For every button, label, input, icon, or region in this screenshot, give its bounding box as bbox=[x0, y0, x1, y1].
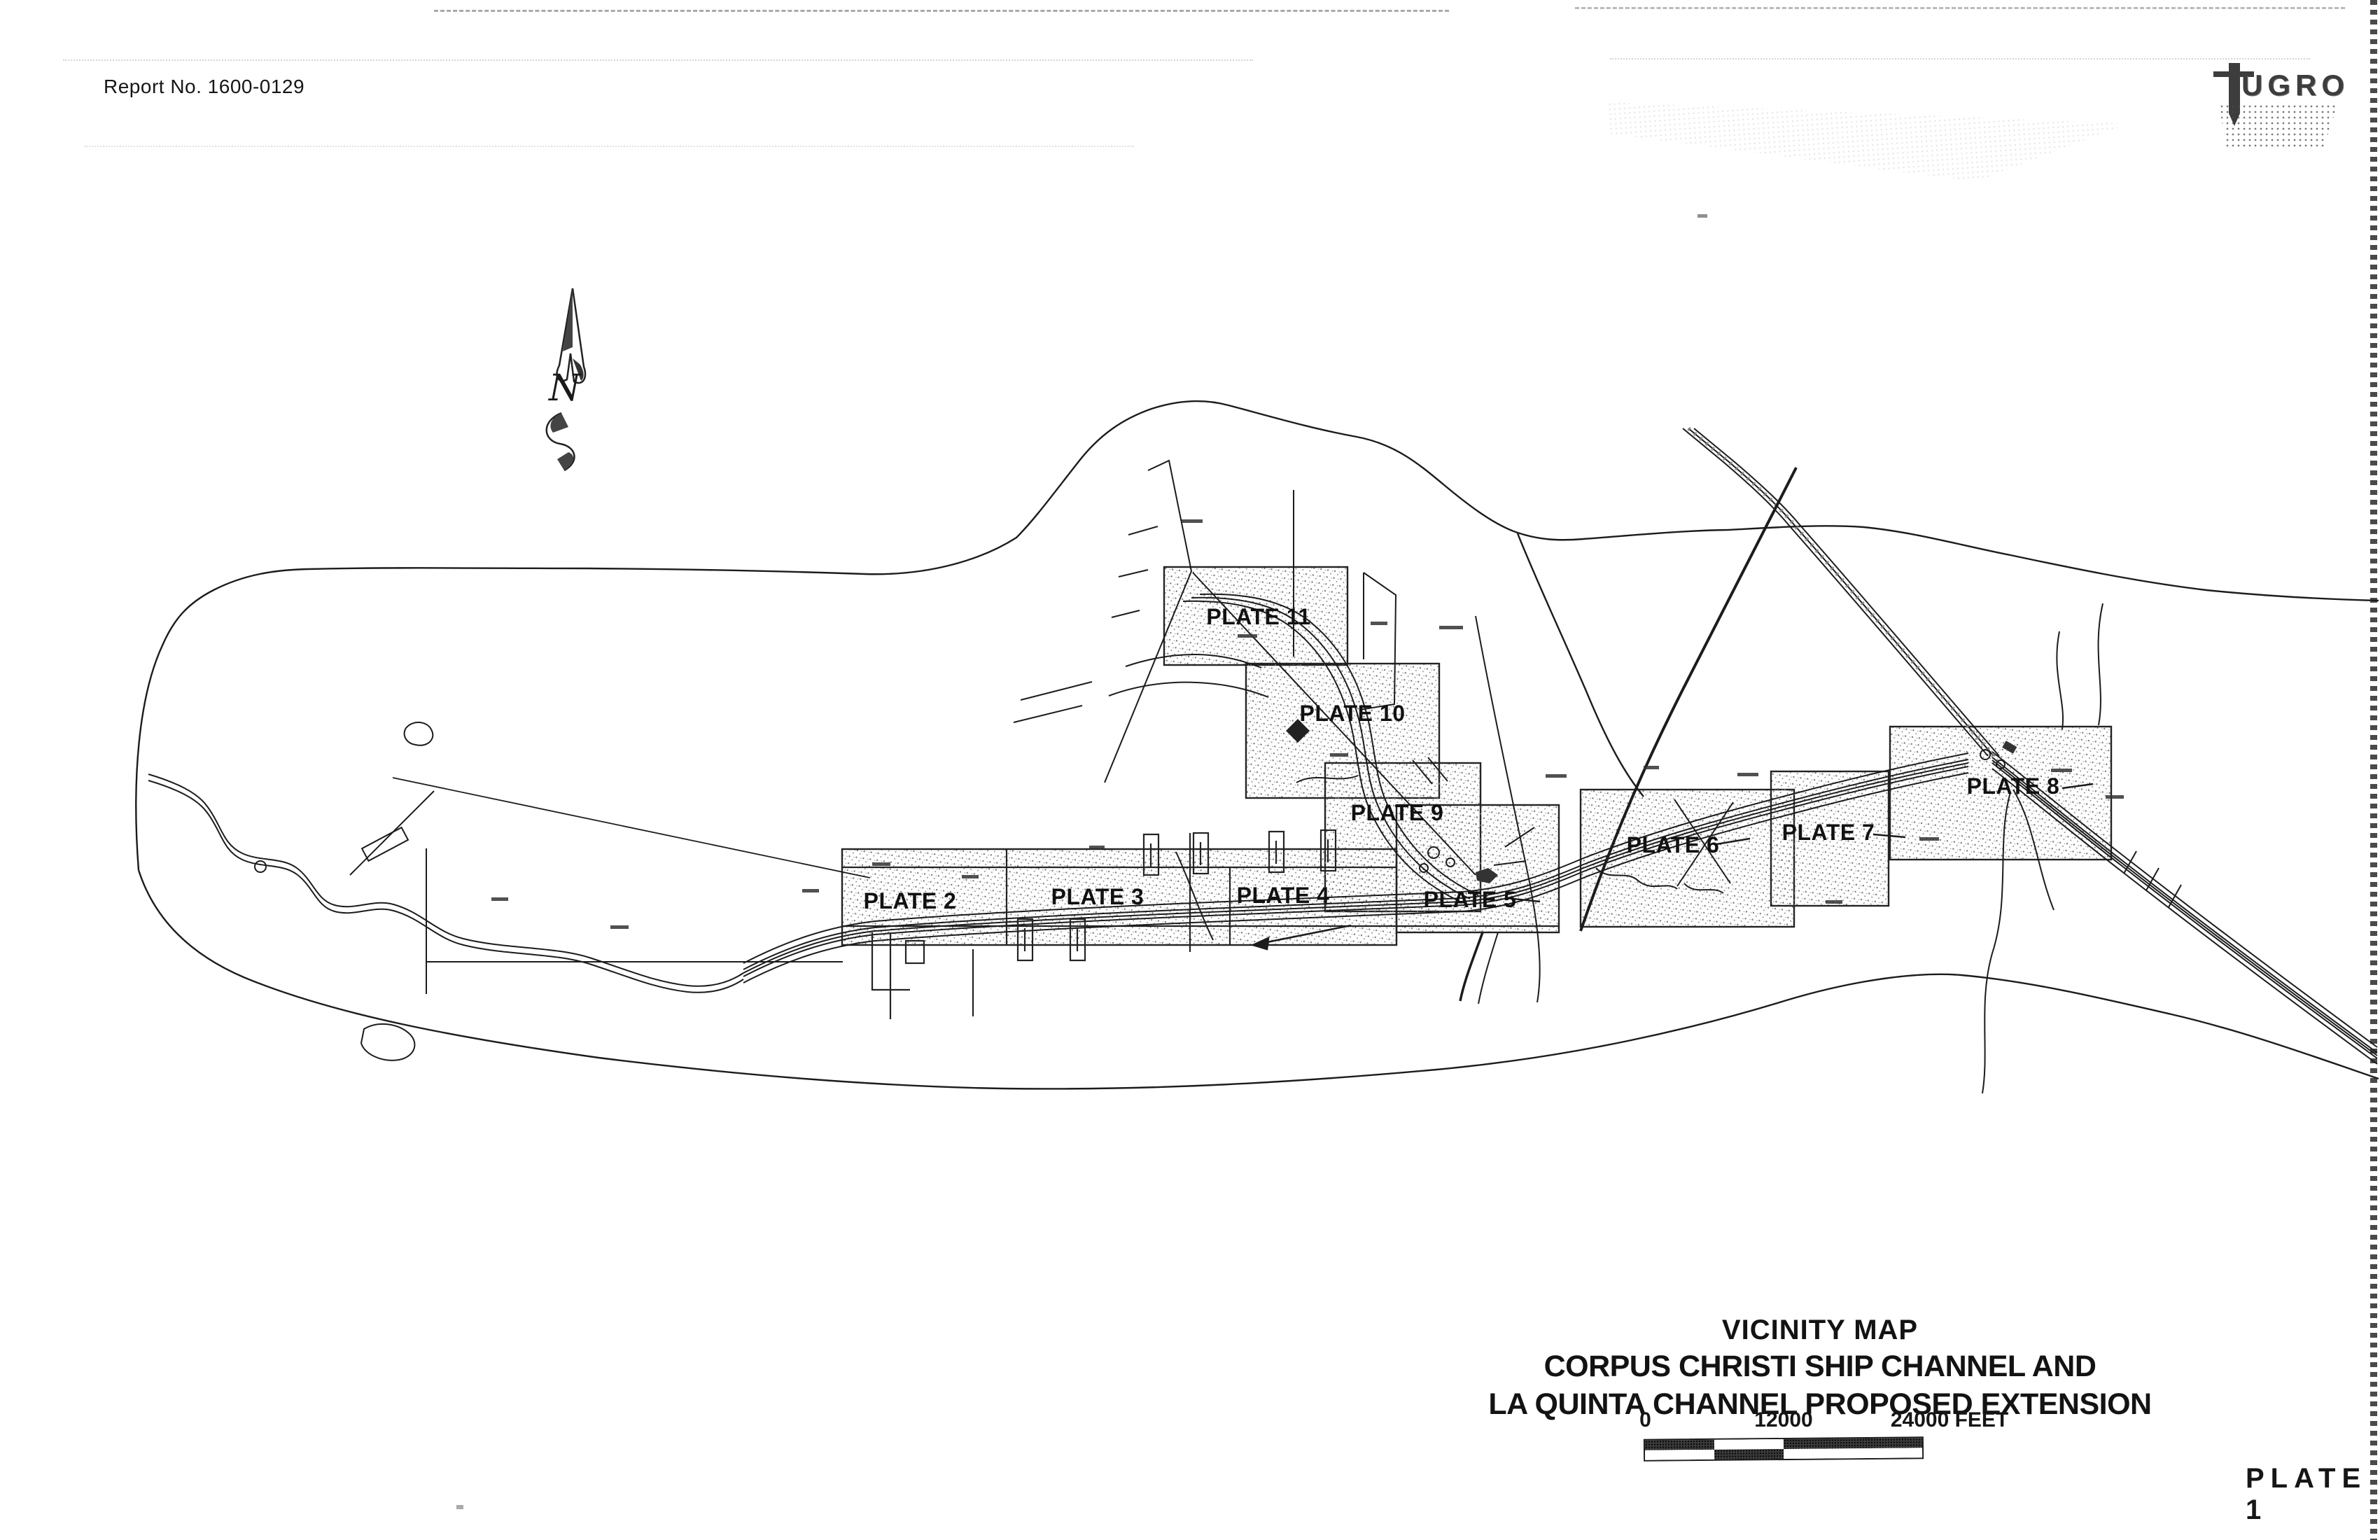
pond bbox=[405, 722, 433, 745]
pond bbox=[255, 861, 266, 872]
pond bbox=[361, 1024, 414, 1060]
road-south bbox=[1478, 932, 1498, 1004]
scale-tick-0: 0 bbox=[1639, 1408, 1651, 1432]
north-label: N bbox=[547, 367, 582, 409]
plate-2-label: PLATE 2 bbox=[864, 888, 957, 913]
plate-9-label: PLATE 9 bbox=[1351, 800, 1444, 825]
north-needle-fill bbox=[563, 288, 573, 351]
plate-10-label: PLATE 10 bbox=[1300, 701, 1406, 726]
stream bbox=[2057, 631, 2063, 729]
stream bbox=[2099, 603, 2103, 725]
plate-7-label: PLATE 7 bbox=[1782, 820, 1875, 845]
plate-4-label: PLATE 4 bbox=[1237, 883, 1330, 908]
north-ribbon-fill bbox=[550, 413, 568, 433]
plate-5-label: PLATE 5 bbox=[1424, 887, 1517, 912]
plate-6-label: PLATE 6 bbox=[1627, 832, 1720, 857]
map-title-block: VICINITY MAP CORPUS CHRISTI SHIP CHANNEL… bbox=[1435, 1315, 2205, 1422]
north-ribbon-fill bbox=[557, 452, 573, 470]
vicinity-map-canvas: N PLATE 2 PLATE 3 PLATE 4 PLATE 5 PLATE … bbox=[0, 0, 2380, 1540]
road-south bbox=[1460, 932, 1483, 1001]
sheet-number: PLATE 1 bbox=[2246, 1463, 2380, 1526]
north-arrow: N bbox=[547, 288, 585, 470]
scale-bar-ticks: 0 12000 24000 FEET bbox=[1644, 1408, 1924, 1438]
causeway-stipple bbox=[1688, 428, 1994, 756]
plate-11-label: PLATE 11 bbox=[1206, 604, 1310, 629]
map-title: VICINITY MAP bbox=[1435, 1315, 2205, 1346]
scale-tick-12000: 12000 bbox=[1754, 1408, 1812, 1432]
plate-3-label: PLATE 3 bbox=[1051, 884, 1144, 909]
scale-tick-24000: 24000 FEET bbox=[1891, 1408, 2008, 1432]
pipeline bbox=[393, 778, 870, 878]
ne-causeway bbox=[1683, 428, 1999, 756]
plate-6-extent bbox=[1581, 790, 1794, 927]
scanned-report-page: Report No. 1600-0129 UGRO bbox=[0, 0, 2380, 1540]
boundary-inner-descent bbox=[1518, 533, 1644, 797]
nueces-river bbox=[148, 774, 743, 993]
plate-8-label: PLATE 8 bbox=[1967, 773, 2060, 799]
map-subtitle-line1: CORPUS CHRISTI SHIP CHANNEL AND bbox=[1435, 1350, 2205, 1384]
scale-bar-graphic bbox=[1644, 1436, 1924, 1461]
scale-bar: 0 12000 24000 FEET bbox=[1644, 1408, 1924, 1460]
